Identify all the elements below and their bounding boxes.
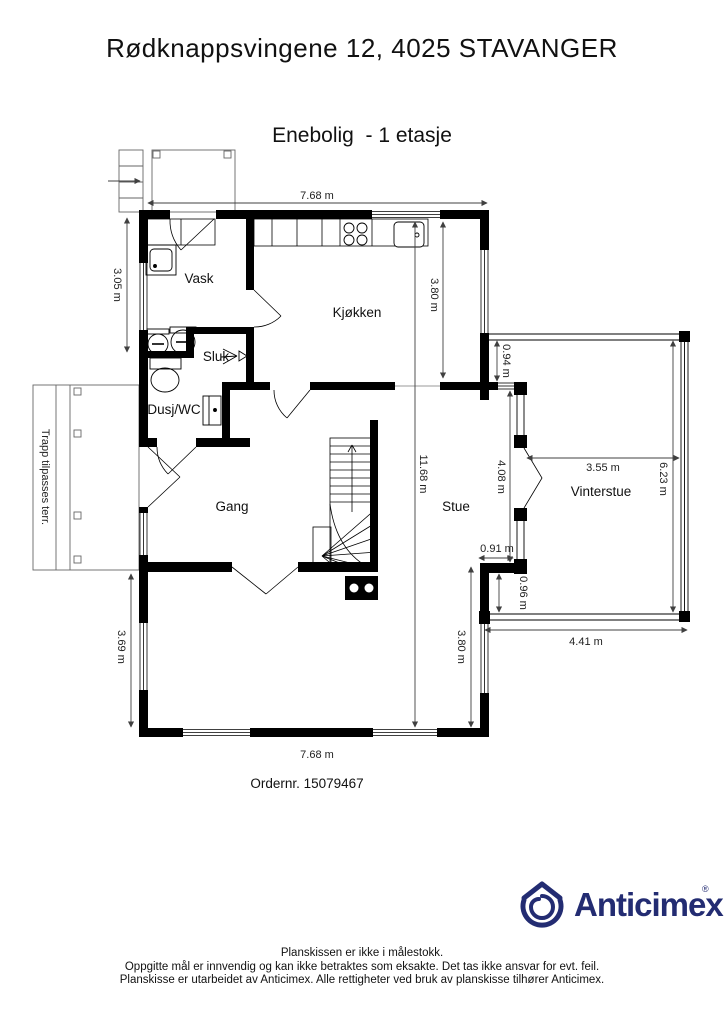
footer-line-2: Oppgitte mål er innvendig og kan ikke be… [0, 961, 724, 975]
room-sluk: Sluk [203, 349, 230, 364]
dim-vs-door-span: 4.08 m [495, 460, 507, 494]
dim-vs-height: 6.23 m [657, 462, 669, 496]
shower-panel-icon [203, 396, 221, 425]
footer-line-3: Planskisse er utarbeidet av Anticimex. A… [0, 974, 724, 988]
room-vask: Vask [184, 271, 213, 286]
deck-label: Trapp tilpasses terr. [39, 429, 51, 525]
room-dusj-wc: Dusj/WC [147, 402, 200, 417]
room-labels: Vask Kjøkken Sluk Dusj/WC Gang Stue Vint… [147, 271, 631, 514]
dim-jog-width: 0.91 m [480, 543, 514, 555]
dim-kitchen-height: 3.80 m [428, 278, 440, 312]
footer-disclaimer: Planskissen er ikke i målestokk. Oppgitt… [0, 947, 724, 988]
toilet-icon [150, 358, 181, 392]
room-stue: Stue [442, 499, 470, 514]
anticimex-logo-icon [514, 876, 570, 934]
room-kjokken: Kjøkken [333, 305, 382, 320]
room-vinterstue: Vinterstue [571, 484, 632, 499]
footer-line-1: Planskissen er ikke i målestokk. [0, 947, 724, 961]
floorplan-page: Rødknappsvingene 12, 4025 STAVANGER Eneb… [0, 0, 724, 1024]
dim-vs-inner-width: 3.55 m [586, 462, 620, 474]
stairs-icon [313, 438, 377, 568]
dim-vs-offset-top: 0.94 m [500, 344, 512, 378]
stove-icon [344, 223, 367, 245]
floorplan-drawing: Trapp tilpasses terr. [0, 0, 724, 1024]
dim-vask-height: 3.05 m [111, 268, 123, 302]
dim-jog-height: 0.96 m [517, 576, 529, 610]
dim-vs-bottom-width: 4.41 m [569, 636, 603, 648]
fireplace-icon [345, 576, 378, 600]
vask-counter-icon [146, 219, 215, 245]
kitchen-sink-icon [394, 222, 424, 247]
dim-stue-left-height: 3.69 m [115, 630, 127, 664]
vask-sink-icon [146, 245, 176, 275]
dim-total-height: 11.68 m [417, 455, 429, 494]
anticimex-logo-text: Anticimex [574, 886, 723, 924]
order-number: Ordernr. 15079467 [250, 776, 363, 791]
dim-stue-right-height: 3.80 m [455, 630, 467, 664]
dim-bottom-width: 7.68 m [300, 749, 334, 761]
anticimex-logo: Anticimex ® [514, 876, 714, 934]
room-gang: Gang [215, 499, 248, 514]
dim-top-width: 7.68 m [300, 190, 334, 202]
registered-mark: ® [702, 884, 709, 894]
